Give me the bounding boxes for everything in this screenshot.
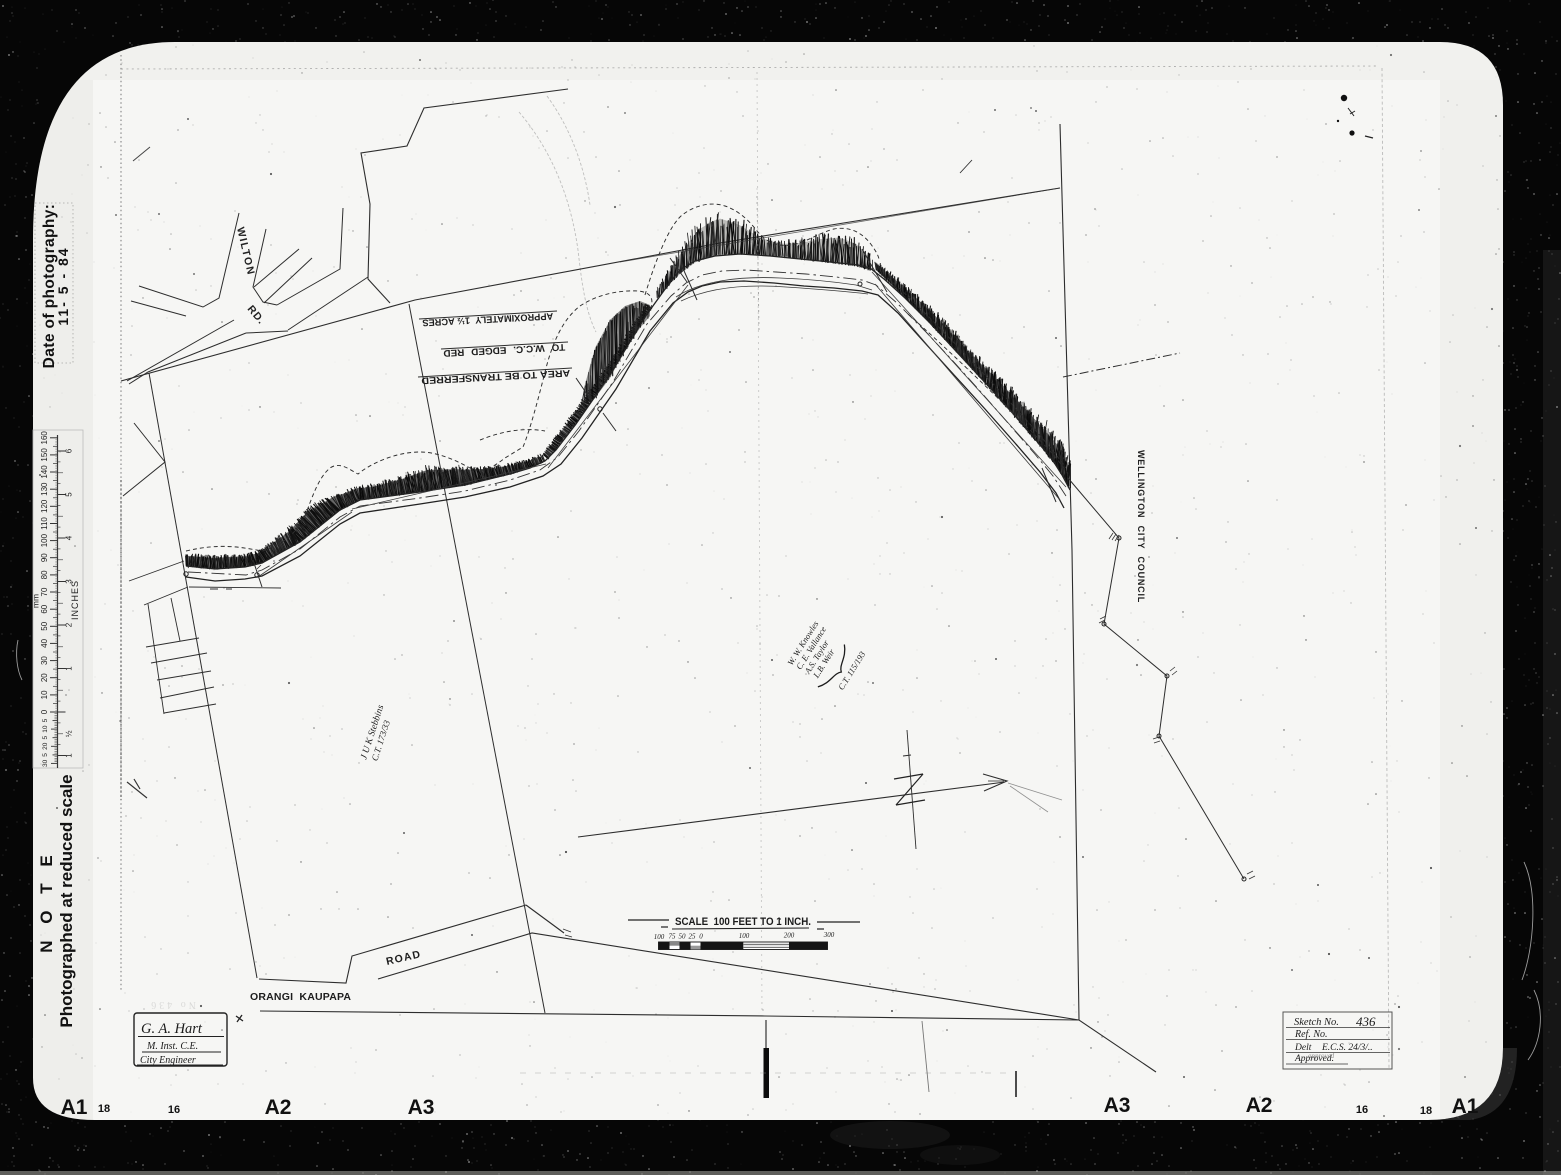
svg-text:120: 120 [40,499,49,513]
svg-text:100: 100 [739,932,750,940]
svg-text:ORANGI KAUPAPA: ORANGI KAUPAPA [250,991,351,1003]
svg-text:20: 20 [40,673,49,682]
svg-text:5: 5 [42,718,49,722]
svg-text:5: 5 [65,492,74,497]
svg-text:30: 30 [40,656,49,665]
svg-text:436: 436 [1356,1014,1376,1029]
svg-text:160: 160 [40,431,49,445]
svg-text:5: 5 [42,753,49,757]
svg-text:approved: approved [1308,1052,1335,1060]
svg-text:110: 110 [40,517,49,530]
svg-text:130: 130 [40,482,49,496]
svg-text:50: 50 [40,621,49,630]
svg-text:10: 10 [40,690,49,699]
svg-text:1: 1 [65,753,74,758]
svg-text:25: 25 [689,933,697,941]
svg-text:20: 20 [42,742,49,750]
svg-text:18: 18 [98,1103,110,1115]
svg-text:150: 150 [40,448,49,462]
svg-text:11- 5 - 84: 11- 5 - 84 [55,246,71,325]
svg-text:INCHES: INCHES [70,580,80,620]
svg-text:50: 50 [679,933,687,941]
svg-text:A3: A3 [1104,1094,1131,1117]
svg-text:30: 30 [42,759,49,767]
svg-text:90: 90 [40,553,49,562]
svg-text:200: 200 [784,932,795,940]
svg-text:80: 80 [40,570,49,579]
svg-text:2: 2 [65,622,74,627]
svg-text:4: 4 [65,535,74,540]
svg-text:½: ½ [65,730,74,737]
svg-text:mm: mm [31,594,41,608]
svg-text:A1: A1 [1452,1095,1479,1118]
svg-text:0: 0 [699,933,703,941]
svg-text:0: 0 [40,709,49,714]
svg-text:10: 10 [42,725,49,733]
svg-text:40: 40 [40,638,49,647]
svg-text:Sketch No.: Sketch No. [1294,1017,1339,1028]
svg-text:Ref. No.: Ref. No. [1294,1029,1328,1040]
svg-text:70: 70 [40,587,49,596]
svg-text:No 436: No 436 [148,999,196,1010]
svg-text:WELLINGTON CITY COUNCIL: WELLINGTON CITY COUNCIL [1136,450,1146,603]
svg-text:5: 5 [42,736,49,740]
svg-text:100: 100 [654,933,665,941]
svg-text:A1: A1 [61,1096,88,1119]
svg-text:SCALE 100 FEET TO 1 INCH.: SCALE 100 FEET TO 1 INCH. [675,916,811,928]
svg-text:A2: A2 [1246,1094,1273,1117]
svg-text:16: 16 [168,1104,180,1116]
svg-text:G. A. Hart: G. A. Hart [141,1021,203,1037]
svg-text:M. Inst. C.E.: M. Inst. C.E. [146,1041,198,1052]
svg-text:N O T E: N O T E [37,849,56,952]
svg-text:A3: A3 [408,1096,435,1119]
svg-text:75: 75 [669,933,677,941]
svg-text:Photographed at reduced scale: Photographed at reduced scale [57,774,76,1027]
svg-text:City Engineer: City Engineer [140,1055,196,1066]
svg-text:100: 100 [40,533,49,547]
svg-text:6: 6 [65,448,74,453]
svg-text:300: 300 [823,931,835,939]
svg-text:A2: A2 [265,1096,292,1119]
svg-text:16: 16 [1356,1104,1368,1116]
svg-text:1: 1 [65,666,74,671]
svg-text:60: 60 [40,604,49,613]
svg-text:18: 18 [1420,1105,1432,1117]
svg-text:140: 140 [40,465,49,479]
